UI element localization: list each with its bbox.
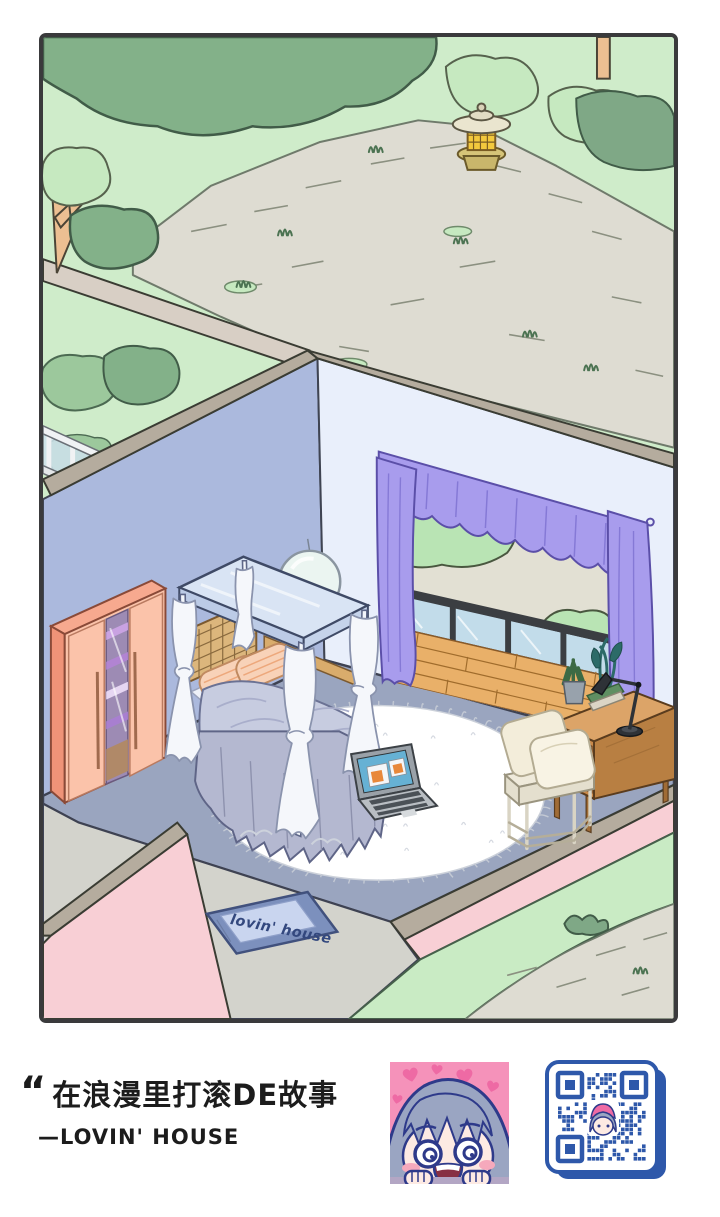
blush (479, 1160, 495, 1170)
quote-mark-icon: “ (20, 1072, 44, 1112)
caption: “ 在浪漫里打滚DE故事 —LOVIN' HOUSE (20, 1072, 380, 1149)
wardrobe-handle-right (135, 652, 136, 749)
qr-center-avatar (587, 1100, 619, 1136)
wardrobe-handle-left (97, 672, 98, 769)
qr-code (545, 1060, 669, 1182)
avatar (390, 1062, 509, 1184)
bedroom-illustration: lovin' house (43, 37, 674, 1019)
artwork-frame: lovin' house (39, 33, 678, 1023)
plant-pot (563, 682, 585, 704)
chair-pillow (528, 728, 597, 791)
caption-attribution: —LOVIN' HOUSE (38, 1125, 380, 1149)
curtain-left-panel (377, 458, 416, 686)
caption-quote: 在浪漫里打滚DE故事 (52, 1072, 338, 1115)
